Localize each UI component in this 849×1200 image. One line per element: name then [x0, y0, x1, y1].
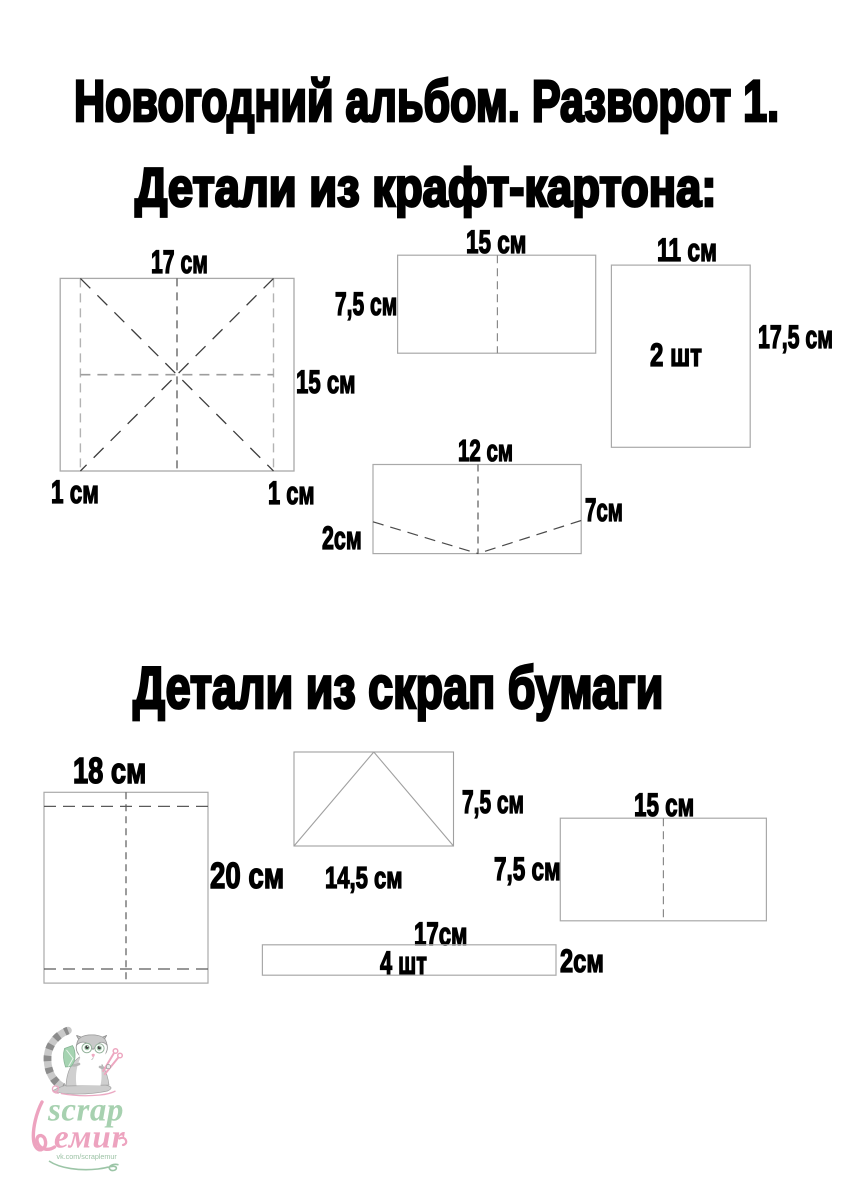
svg-text:емur: емur: [54, 1120, 126, 1156]
svg-text:vk.com/scraplemur: vk.com/scraplemur: [57, 1152, 118, 1161]
